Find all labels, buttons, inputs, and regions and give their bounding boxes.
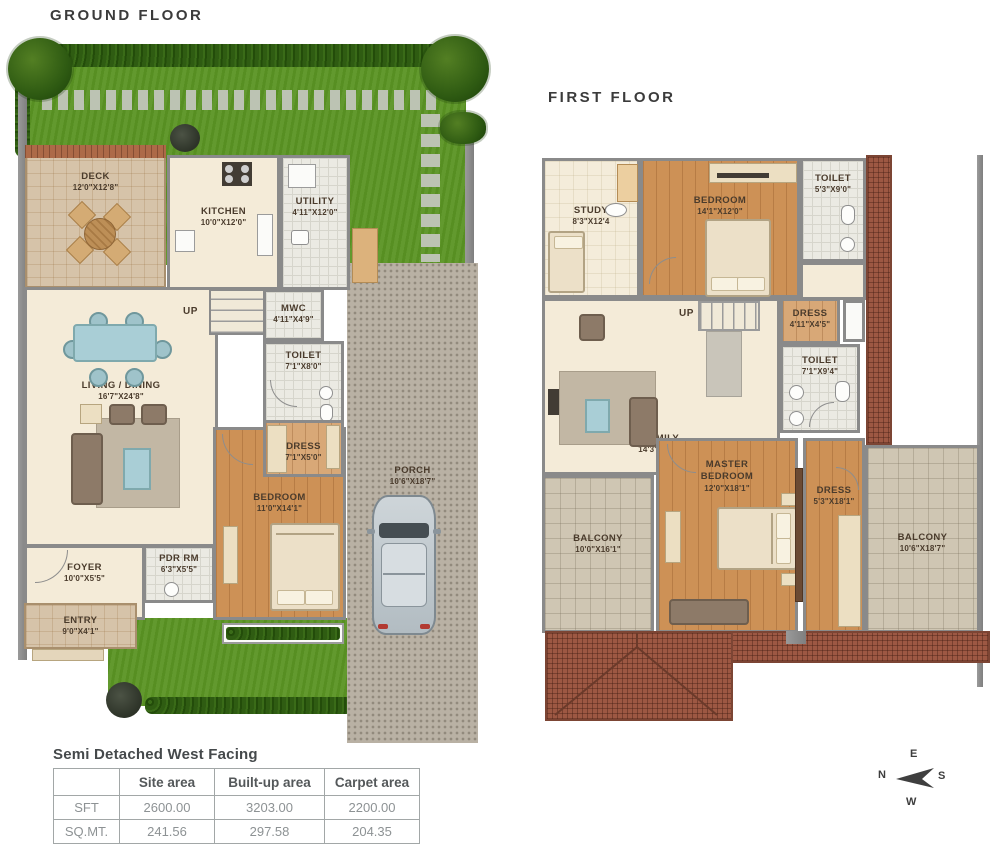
compass-left: N bbox=[878, 769, 886, 781]
compass-top: E bbox=[910, 748, 917, 760]
compass: E N S W bbox=[0, 0, 1000, 846]
floor-plan-canvas: GROUND FLOOR PORCH 10'6"X18'7" bbox=[0, 0, 1000, 846]
compass-bottom: W bbox=[906, 796, 916, 808]
compass-right: S bbox=[938, 770, 945, 782]
compass-arrow-icon bbox=[894, 764, 936, 792]
